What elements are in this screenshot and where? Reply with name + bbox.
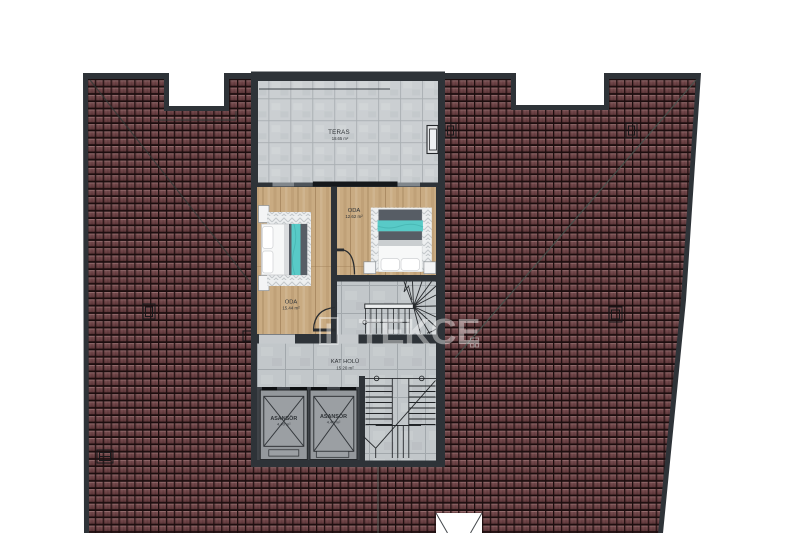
svg-text:15.20 m²: 15.20 m² [336,366,354,371]
svg-text:15.44 m²: 15.44 m² [282,306,300,311]
svg-text:4.40 m²: 4.40 m² [277,422,291,427]
svg-text:TERAS: TERAS [328,129,350,136]
svg-text:4.40 m²: 4.40 m² [327,420,341,425]
svg-text:TEKCE: TEKCE [359,311,481,352]
svg-text:18.65 m²: 18.65 m² [332,136,349,141]
svg-text:KAT HOLÜ: KAT HOLÜ [331,358,359,365]
svg-text:12.62 m²: 12.62 m² [345,214,363,219]
